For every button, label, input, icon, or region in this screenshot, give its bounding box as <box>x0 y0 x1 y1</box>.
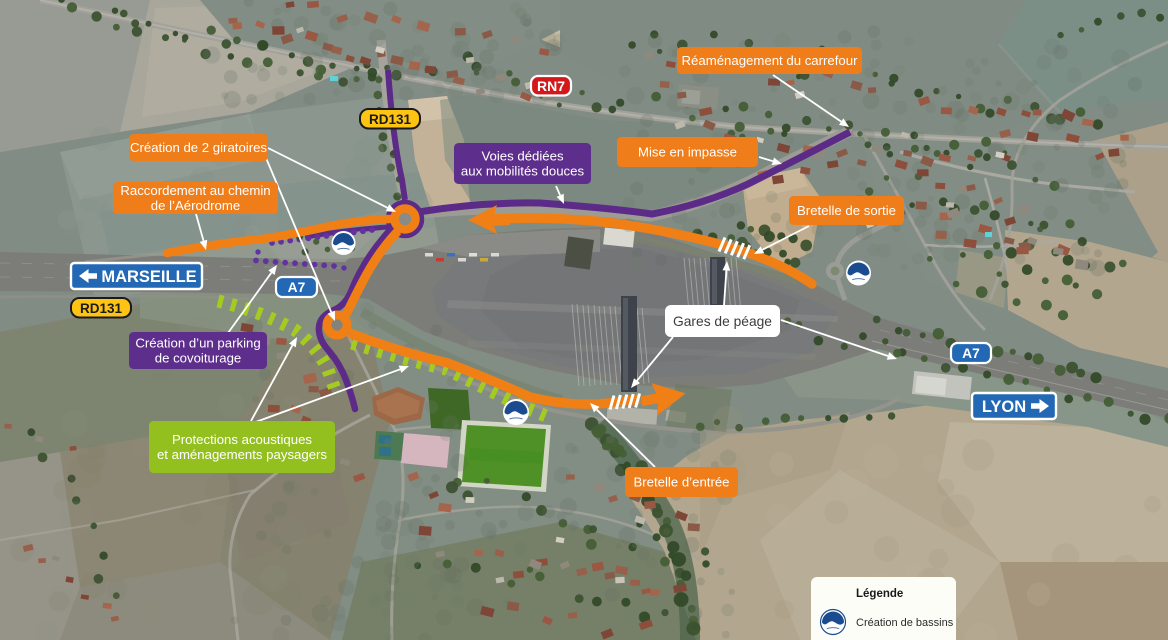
svg-text:Création d’un parking: Création d’un parking <box>135 336 260 351</box>
svg-text:MARSEILLE: MARSEILLE <box>101 268 196 286</box>
svg-text:LYON: LYON <box>982 398 1026 416</box>
svg-text:Création de 2 giratoires: Création de 2 giratoires <box>130 140 267 155</box>
svg-text:Légende: Légende <box>856 588 903 600</box>
svg-text:Réaménagement du carrefour: Réaménagement du carrefour <box>682 53 859 68</box>
svg-text:Bretelle d’entrée: Bretelle d’entrée <box>633 475 729 490</box>
svg-text:Mise en impasse: Mise en impasse <box>638 145 737 160</box>
svg-text:RD131: RD131 <box>80 301 123 316</box>
svg-text:RN7: RN7 <box>537 78 565 94</box>
svg-text:de covoiturage: de covoiturage <box>155 351 242 366</box>
svg-text:Protections acoustiques: Protections acoustiques <box>172 432 312 447</box>
svg-text:Gares de péage: Gares de péage <box>673 314 772 329</box>
svg-text:Raccordement au chemin: Raccordement au chemin <box>120 183 270 198</box>
svg-text:RD131: RD131 <box>369 112 412 127</box>
svg-text:et aménagements paysagers: et aménagements paysagers <box>157 447 327 462</box>
svg-text:Voies dédiées: Voies dédiées <box>481 149 564 164</box>
svg-text:Bretelle de sortie: Bretelle de sortie <box>797 203 896 218</box>
svg-text:A7: A7 <box>962 346 980 361</box>
svg-text:Création de bassins: Création de bassins <box>856 617 954 629</box>
svg-text:de l’Aérodrome: de l’Aérodrome <box>151 198 240 213</box>
svg-text:aux mobilités douces: aux mobilités douces <box>461 164 585 179</box>
svg-text:A7: A7 <box>288 280 306 295</box>
